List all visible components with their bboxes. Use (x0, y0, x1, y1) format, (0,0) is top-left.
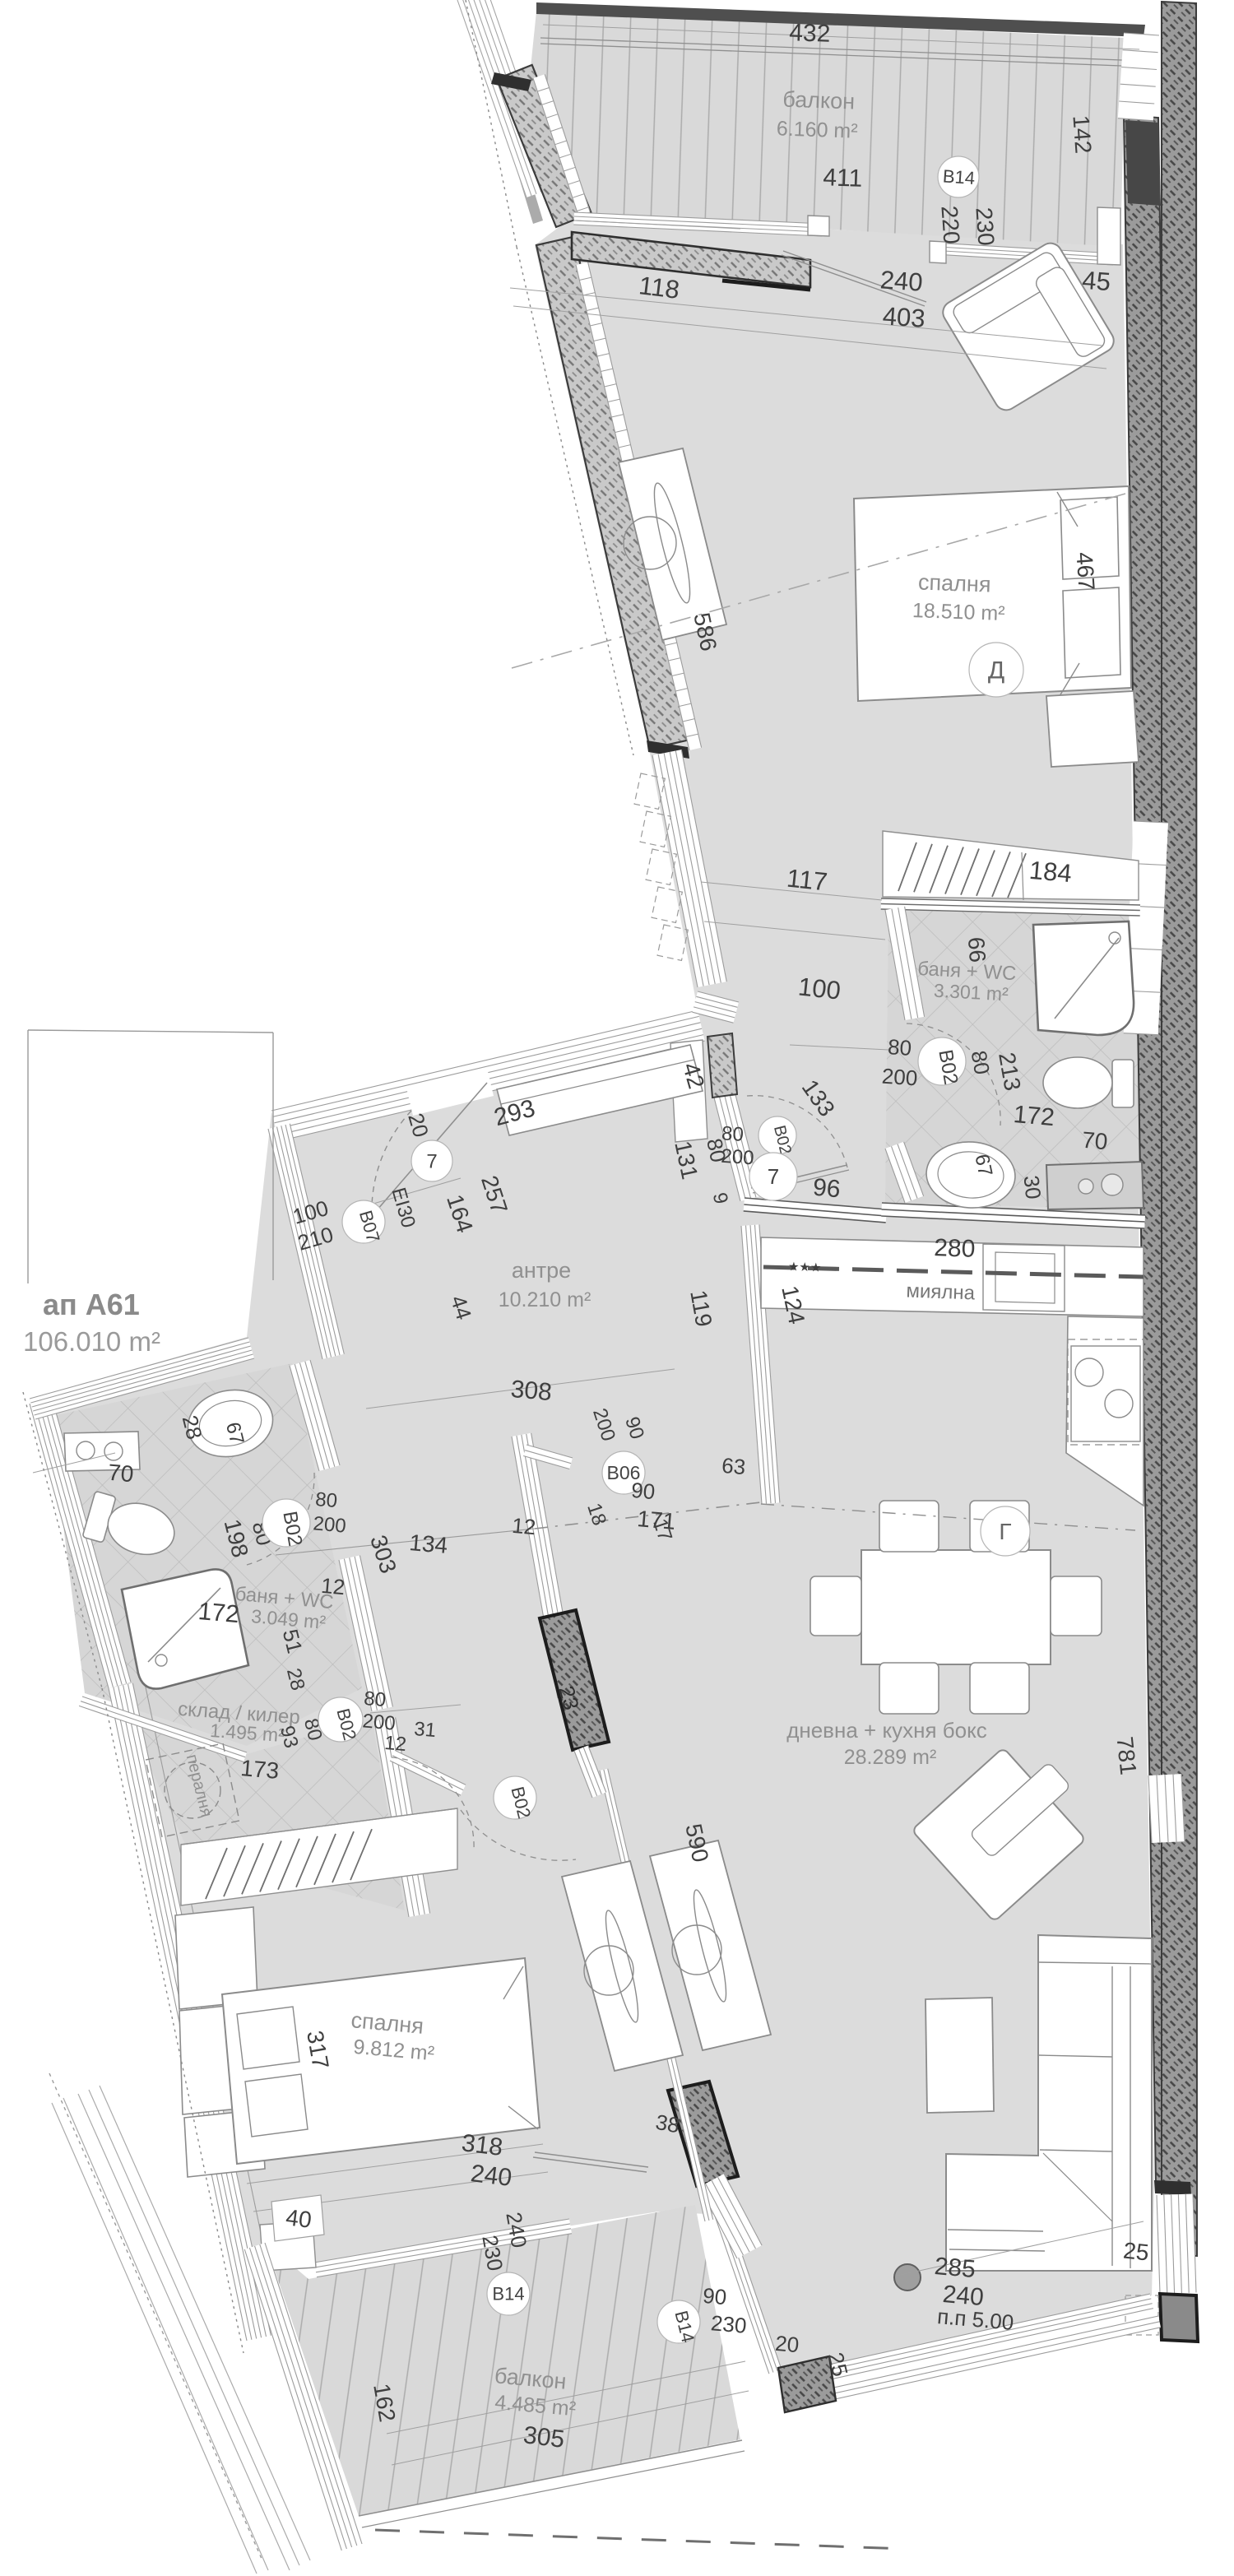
svg-text:дневна + кухня бокс: дневна + кухня бокс (786, 1718, 987, 1743)
svg-text:70: 70 (107, 1460, 135, 1488)
svg-text:7: 7 (768, 1164, 779, 1189)
svg-text:403: 403 (882, 301, 926, 333)
svg-text:80: 80 (721, 1122, 745, 1146)
svg-text:200: 200 (721, 1145, 755, 1170)
svg-text:7: 7 (426, 1150, 437, 1172)
svg-text:20: 20 (774, 2331, 800, 2357)
svg-text:10.210 m²: 10.210 m² (499, 1288, 591, 1311)
svg-text:38: 38 (654, 2110, 682, 2138)
svg-text:230: 230 (710, 2310, 748, 2338)
svg-text:12: 12 (383, 1732, 407, 1756)
svg-text:172: 172 (1012, 1101, 1055, 1131)
svg-text:ап А61: ап А61 (43, 1288, 140, 1321)
svg-text:80: 80 (967, 1049, 995, 1077)
svg-text:66: 66 (963, 936, 990, 963)
svg-text:70: 70 (1081, 1127, 1109, 1155)
svg-text:318: 318 (460, 2129, 504, 2161)
svg-text:305: 305 (522, 2421, 566, 2453)
svg-text:3.301 m²: 3.301 m² (933, 980, 1009, 1005)
svg-text:467: 467 (1071, 551, 1099, 592)
svg-text:308: 308 (509, 1376, 553, 1406)
svg-text:30: 30 (1019, 1174, 1046, 1200)
svg-text:100: 100 (797, 972, 842, 1005)
svg-text:80: 80 (887, 1034, 912, 1061)
svg-text:12: 12 (511, 1513, 536, 1539)
svg-text:балкон: балкон (782, 86, 856, 114)
svg-text:285: 285 (933, 2253, 977, 2283)
svg-text:80: 80 (363, 1687, 387, 1711)
svg-text:184: 184 (1028, 856, 1074, 888)
svg-text:134: 134 (408, 1529, 448, 1558)
svg-text:432: 432 (789, 19, 831, 48)
svg-text:63: 63 (721, 1453, 746, 1479)
svg-text:6.160 m²: 6.160 m² (776, 117, 858, 142)
svg-text:230: 230 (971, 207, 999, 247)
svg-text:200: 200 (362, 1710, 397, 1734)
svg-text:200: 200 (313, 1512, 347, 1537)
svg-text:142: 142 (1068, 114, 1096, 155)
svg-text:106.010 m²: 106.010 m² (23, 1326, 160, 1357)
svg-text:80: 80 (314, 1488, 338, 1512)
svg-text:173: 173 (239, 1755, 280, 1784)
svg-text:спалня: спалня (918, 569, 991, 596)
svg-text:781: 781 (1112, 1735, 1142, 1776)
svg-text:118: 118 (638, 271, 681, 304)
svg-text:28.289 m²: 28.289 m² (844, 1746, 937, 1769)
svg-text:45: 45 (1081, 266, 1111, 296)
svg-text:25: 25 (1122, 2238, 1150, 2266)
svg-text:12: 12 (320, 1573, 346, 1599)
svg-text:31: 31 (413, 1718, 437, 1742)
svg-text:96: 96 (812, 1174, 842, 1204)
svg-text:миялна: миялна (906, 1280, 976, 1305)
svg-text:B14: B14 (942, 165, 976, 188)
svg-text:411: 411 (823, 164, 863, 193)
svg-text:117: 117 (786, 864, 829, 897)
svg-text:90: 90 (702, 2283, 727, 2309)
svg-text:200: 200 (881, 1064, 918, 1091)
svg-text:240: 240 (879, 265, 924, 297)
svg-text:171: 171 (636, 1506, 676, 1534)
svg-text:220: 220 (936, 205, 964, 245)
svg-text:172: 172 (197, 1598, 240, 1628)
svg-text:★★★: ★★★ (788, 1260, 822, 1274)
svg-text:B14: B14 (492, 2284, 524, 2304)
svg-text:Г: Г (999, 1519, 1011, 1544)
svg-text:240: 240 (469, 2160, 513, 2192)
svg-text:40: 40 (285, 2204, 313, 2233)
svg-text:280: 280 (934, 1234, 976, 1263)
svg-text:90: 90 (630, 1478, 656, 1504)
svg-text:антре: антре (512, 1258, 571, 1283)
svg-text:18.510 m²: 18.510 m² (912, 599, 1005, 625)
svg-text:67: 67 (970, 1153, 996, 1179)
svg-text:Д: Д (988, 657, 1004, 685)
